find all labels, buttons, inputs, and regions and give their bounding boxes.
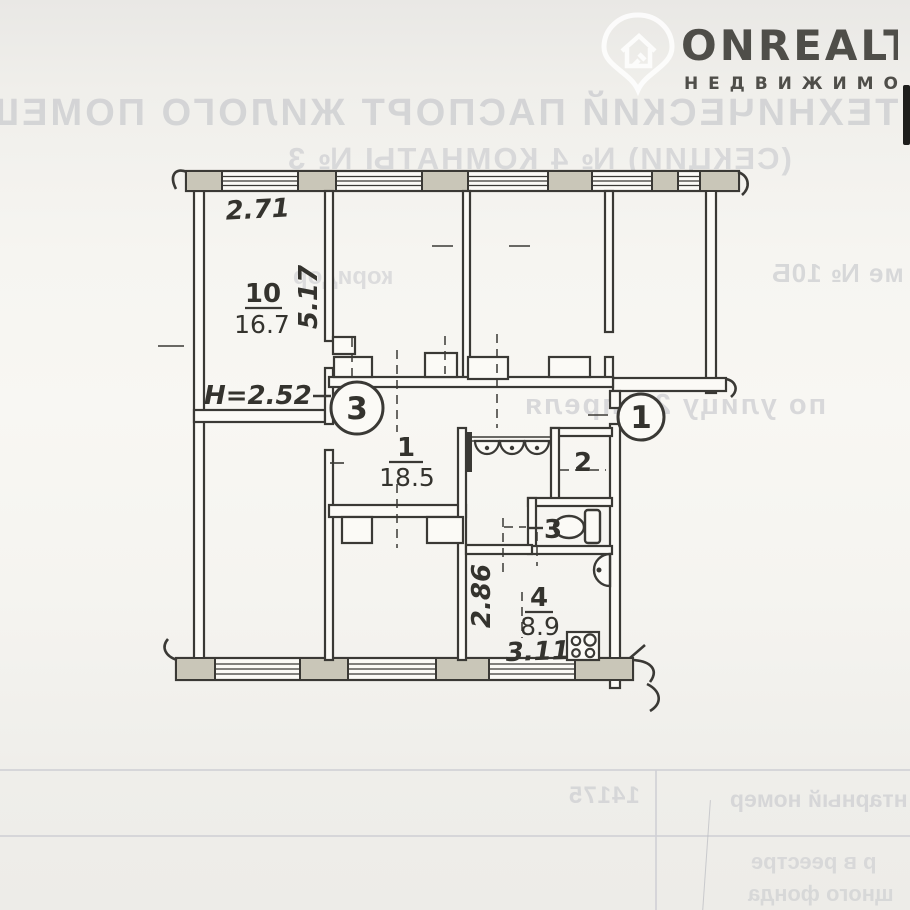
dim-top-width: 2.71 [225, 193, 291, 226]
room-2-label: 2 [574, 448, 592, 478]
watermark-tagline: Н Е Д В И Ж И М О С Т Ь [684, 74, 898, 94]
registry-line1-mirrored: р в реестре [751, 849, 877, 875]
table-divider-vertical [655, 770, 657, 910]
svg-text:4: 4 [530, 583, 548, 613]
svg-text:3: 3 [346, 391, 368, 427]
house-number-mirrored: ме № 10Б [771, 258, 904, 289]
scratch-mark [702, 800, 711, 910]
svg-text:1: 1 [630, 400, 652, 436]
room-3-label: 3 [544, 515, 562, 545]
dim-kitchen-width: 3.11 [505, 636, 570, 668]
inventory-value-mirrored: 14175 [568, 782, 640, 810]
table-rule-top [0, 769, 910, 771]
ceiling-height-label: H=2.52 [204, 381, 312, 411]
watermark-logo: ONREALT Н Е Д В И Ж И М О С Т Ь [593, 10, 898, 100]
dim-kitchen-depth: 2.86 [467, 564, 497, 628]
interior-walls [194, 191, 613, 660]
room-1-label: 1 18.5 [379, 433, 435, 492]
scanned-floorplan-page: ТЕХНИЧЕСКИЙ ПАСПОРТ ЖИЛОГО ПОМЕЩЕНИЯ (СЕ… [0, 0, 910, 910]
room-10-label: 10 16.7 [234, 279, 290, 339]
scan-edge-artifact [903, 85, 910, 145]
dim-left-depth: 5.17 [294, 264, 324, 329]
inventory-label-mirrored: нтарный номер [730, 786, 908, 813]
stove-icon [567, 632, 599, 660]
sink-icon [594, 554, 610, 586]
registry-line2-mirrored: щного фонда [748, 881, 894, 907]
svg-text:10: 10 [245, 279, 281, 309]
entry-marker-3: 3 [331, 382, 383, 434]
room-4-label: 4 8.9 [520, 583, 560, 641]
table-rule-middle [0, 835, 910, 837]
location-pin-house-icon [604, 15, 672, 90]
svg-text:1: 1 [397, 433, 415, 463]
svg-text:18.5: 18.5 [379, 463, 435, 492]
watermark-brand: ONREALT [681, 21, 898, 70]
wall-end-hooks [165, 171, 748, 711]
entry-marker-1: 1 [618, 394, 664, 440]
floor-plan: 3 1 10 16.7 1 18.5 2 3 4 8.9 2.71 5.1 [150, 140, 790, 720]
washbasins-icon [465, 432, 551, 472]
svg-text:16.7: 16.7 [234, 310, 290, 339]
